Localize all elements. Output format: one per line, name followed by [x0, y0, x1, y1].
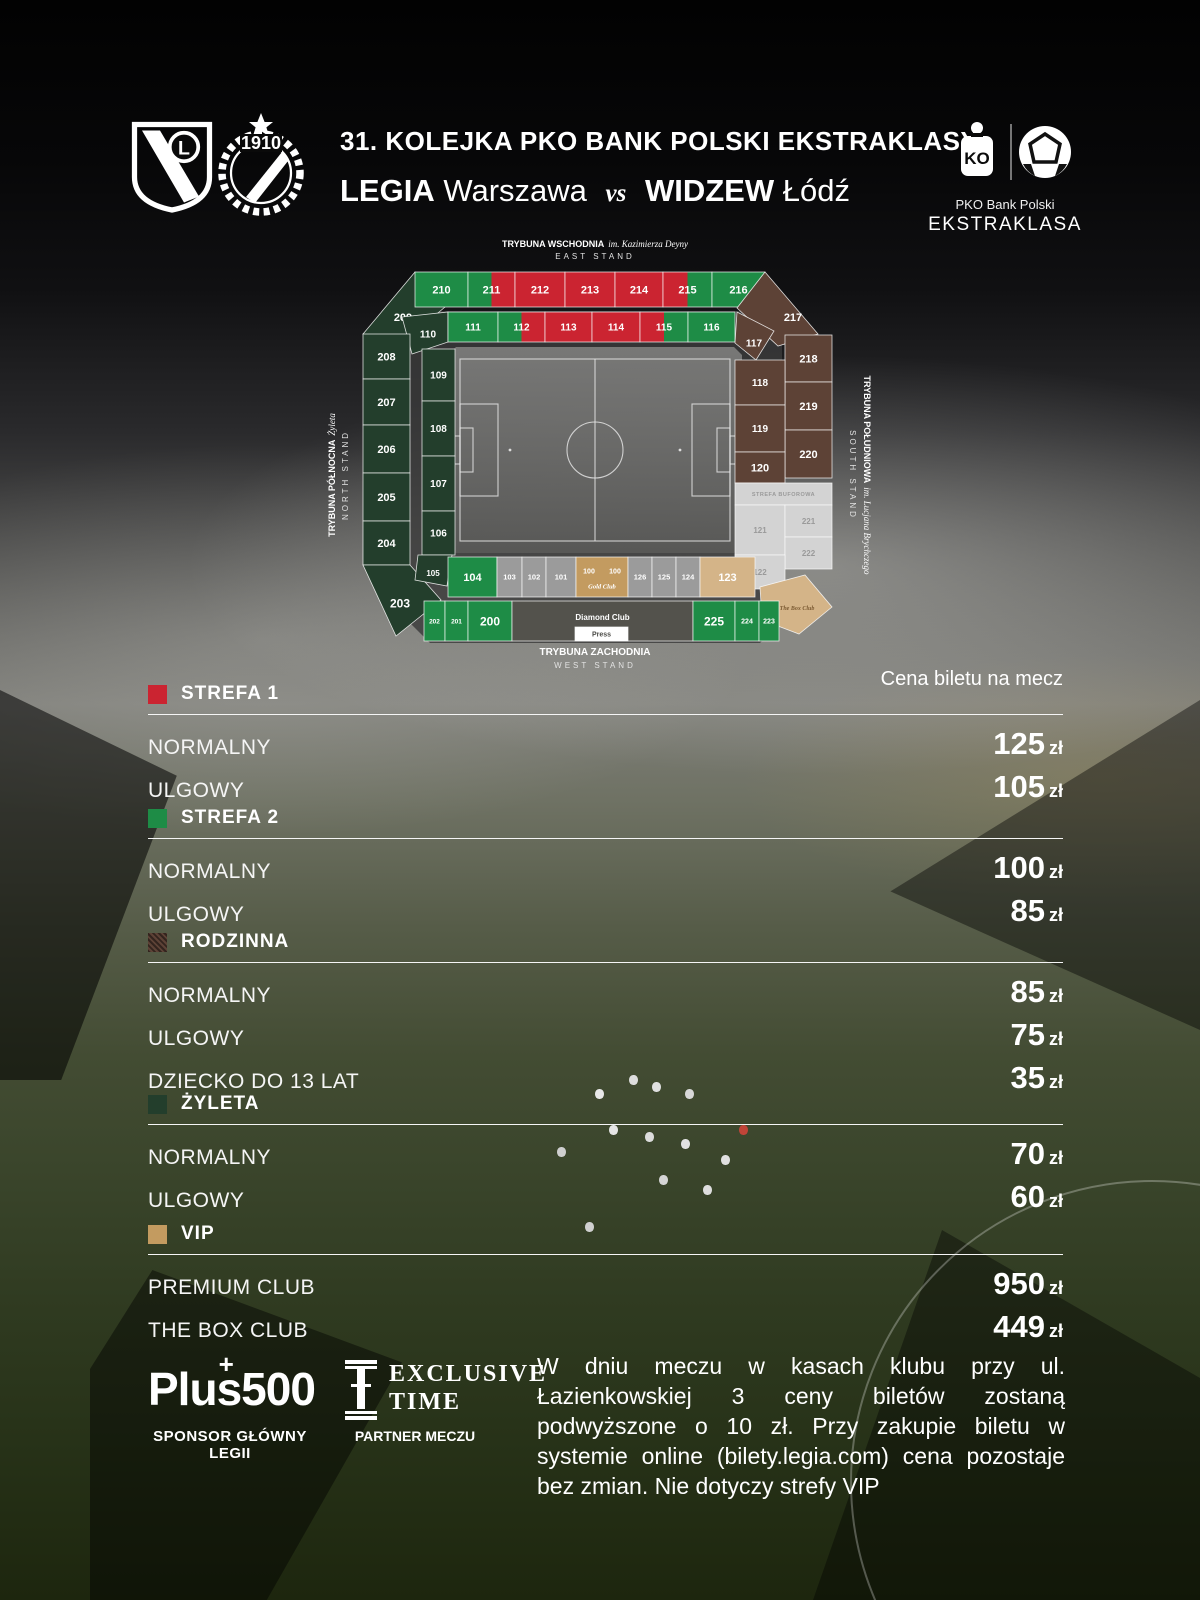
vs-label: vs	[596, 180, 637, 207]
stadium-section-label: 200	[480, 614, 500, 628]
players-on-pitch	[0, 0, 3, 4]
legia-warszawa-crest-icon: L	[127, 116, 217, 214]
away-team-city: Łódź	[783, 173, 850, 208]
plus500-logo: Plus+500	[148, 1362, 315, 1416]
match-title-block: 31. KOLEJKA PKO BANK POLSKI EKSTRAKLASY …	[340, 126, 850, 209]
price-group-rodzinna: RODZINNA NORMALNY 85zł ULGOWY 75zł DZIEC…	[148, 930, 1063, 1092]
match-ticket-poster: L 1910 31. KOLEJKA PKO BANK POLSKI EKSTR…	[0, 0, 1200, 1600]
pko-ekstraklasa-logos-icon: KO	[925, 120, 1085, 186]
stadium-section-label: 118	[752, 378, 769, 389]
stadium-section-label: 104	[463, 572, 482, 584]
stadium-section-label: 107	[430, 479, 447, 490]
stadium-section-label: 109	[430, 371, 447, 382]
stadium-section-label: 113	[560, 323, 577, 334]
exclusive-time-logo: EXCLUSIVETIME	[343, 1358, 547, 1420]
stadium-section-label: 100	[609, 569, 621, 576]
stadium-section-label: Press	[592, 632, 611, 639]
stadium-section-label: 114	[608, 323, 625, 334]
stadium-section-label: 120	[751, 462, 769, 474]
stadium-section	[576, 557, 628, 597]
price-group-strefa1: STREFA 1 NORMALNY 125zł ULGOWY 105zł	[148, 682, 1063, 801]
stadium-section-label: 208	[377, 351, 395, 363]
price-group-zyleta: ŻYLETA NORMALNY 70zł ULGOWY 60zł	[148, 1092, 1063, 1211]
stadium-section-label: 108	[430, 424, 447, 435]
divider	[148, 1124, 1063, 1125]
stadium-section-label: 102	[528, 573, 541, 582]
price-group-vip: VIP PREMIUM CLUB 950zł THE BOX CLUB 449z…	[148, 1222, 1063, 1341]
divider	[148, 962, 1063, 963]
stadium-section-label: 225	[704, 614, 724, 628]
stadium-section-label: 205	[377, 492, 395, 504]
stadium-section-label: 218	[799, 353, 817, 365]
price-group-title: STREFA 1	[181, 683, 279, 705]
stadium-section-label: 112	[513, 323, 530, 334]
price-group-title: ŻYLETA	[181, 1093, 259, 1115]
stadium-section-label: 125	[658, 573, 671, 582]
league-bank-caption: PKO Bank Polski	[925, 197, 1085, 212]
plus-icon: +	[219, 1349, 234, 1380]
stadium-section-label: 111	[465, 323, 481, 334]
stadium-section-label: 206	[377, 444, 395, 456]
divider	[148, 838, 1063, 839]
stadium-section-label: Gold Club	[588, 583, 616, 590]
league-name: EKSTRAKLASA	[925, 214, 1085, 236]
price-row: ULGOWY 60zł	[148, 1179, 1063, 1211]
stadium-section-label: 216	[729, 284, 747, 296]
stadium-section-label: 215	[678, 284, 696, 296]
stadium-section-label: 202	[429, 618, 440, 625]
south-stand-label: TRYBUNA POŁUDNIOWAim. Lucjana Brychczego	[862, 375, 872, 575]
stadium-section-label: 117	[746, 339, 763, 350]
west-stand-label: TRYBUNA ZACHODNIA	[540, 647, 651, 658]
stadium-section-label: 122	[753, 568, 767, 577]
zyleta-color-swatch	[148, 1095, 167, 1114]
strefa1-color-swatch	[148, 685, 167, 704]
svg-text:KO: KO	[964, 149, 990, 168]
divider	[148, 714, 1063, 715]
stadium-section-label: 214	[630, 284, 649, 296]
stadium-section-label: 224	[741, 619, 753, 626]
west-stand-label-en: WEST STAND	[554, 661, 636, 670]
price-row: ULGOWY 75zł	[148, 1017, 1063, 1049]
divider	[148, 1254, 1063, 1255]
stadium-section-label: 110	[420, 330, 437, 341]
south-stand-label-en: SOUTH STAND	[848, 430, 857, 520]
vip-color-swatch	[148, 1225, 167, 1244]
sponsor-caption: SPONSOR GŁÓWNY LEGII	[140, 1428, 320, 1462]
stadium-section-label: 217	[784, 312, 802, 324]
stadium-section-label: 210	[432, 284, 450, 296]
league-logo-block: KO PKO Bank Polski EKSTRAKLASA	[925, 120, 1085, 236]
east-stand-label-en: EAST STAND	[555, 252, 635, 261]
stadium-section-label: 103	[503, 573, 516, 582]
price-row: ULGOWY 105zł	[148, 769, 1063, 801]
stadium-section-label: 203	[390, 596, 410, 610]
stadium-section-label: 211	[483, 284, 501, 296]
stadium-section-label: 222	[802, 549, 816, 558]
east-stand-label: TRYBUNA WSCHODNIAim. Kazimierza Deyny	[502, 239, 688, 249]
matchday-price-note: W dniu meczu w kasach klubu przy ul. Łaz…	[537, 1352, 1065, 1501]
stadium-section-label: 126	[634, 573, 647, 582]
teams-line: LEGIA Warszawa vs WIDZEW Łódź	[340, 173, 850, 209]
price-group-title: STREFA 2	[181, 807, 279, 829]
stadium-section-label: 204	[377, 538, 396, 550]
stadium-section-label: 106	[430, 529, 447, 540]
price-row: THE BOX CLUB 449zł	[148, 1309, 1063, 1341]
stadium-section-label: 119	[752, 424, 769, 435]
stadium-section-label: 101	[555, 573, 568, 582]
price-group-title: RODZINNA	[181, 931, 289, 953]
stadium-section-label: 100	[583, 569, 595, 576]
home-team-city: Warszawa	[443, 173, 587, 208]
stadium-section-label: 207	[377, 397, 395, 409]
stadium-section-label: 116	[703, 323, 720, 334]
round-title: 31. KOLEJKA PKO BANK POLSKI EKSTRAKLASY	[340, 126, 850, 157]
stadium-section-label: 123	[718, 572, 736, 584]
price-row: DZIECKO DO 13 LAT 35zł	[148, 1060, 1063, 1092]
stadium-section-label: 105	[426, 569, 440, 578]
stadium-section-label: 115	[656, 323, 673, 334]
stadium-section-label: 220	[799, 449, 817, 461]
stadium-section-label: 124	[682, 573, 695, 582]
price-row: NORMALNY 70zł	[148, 1136, 1063, 1168]
stadium-section-label: 121	[753, 526, 767, 535]
stadium-section-label: 219	[799, 401, 817, 413]
north-stand-label: TRYBUNA PÓŁNOCNAŻyleta	[326, 413, 337, 537]
north-stand-label-en: NORTH STAND	[341, 430, 350, 520]
strefa2-color-swatch	[148, 809, 167, 828]
price-row: NORMALNY 125zł	[148, 726, 1063, 758]
stadium-section-label: 213	[581, 284, 599, 296]
partner-caption: PARTNER MECZU	[330, 1428, 500, 1444]
stadium-section-label: 223	[763, 619, 775, 626]
price-group-strefa2: STREFA 2 NORMALNY 100zł ULGOWY 85zł	[148, 806, 1063, 925]
price-row: ULGOWY 85zł	[148, 893, 1063, 925]
price-row: NORMALNY 85zł	[148, 974, 1063, 1006]
stadium-section-label: Diamond Club	[575, 613, 629, 622]
stadium-section-label: 201	[451, 618, 462, 625]
home-team-name: LEGIA	[340, 173, 435, 208]
svg-text:L: L	[178, 138, 190, 160]
exclusive-time-monogram-icon	[343, 1358, 379, 1420]
stadium-section-label: 221	[802, 517, 816, 526]
stadium-map: 2092102112122132142152162171101111121131…	[320, 235, 880, 675]
widzew-lodz-crest-icon: 1910	[210, 110, 312, 218]
svg-text:1910: 1910	[241, 133, 281, 153]
price-group-title: VIP	[181, 1223, 215, 1245]
price-row: PREMIUM CLUB 950zł	[148, 1266, 1063, 1298]
away-team-name: WIDZEW	[645, 173, 774, 208]
rodzinna-color-swatch	[148, 933, 167, 952]
stadium-section-label: 212	[531, 284, 549, 296]
stadium-section-label: STREFA BUFOROWA	[752, 492, 815, 498]
stadium-section-label: The Box Club	[780, 606, 815, 612]
price-row: NORMALNY 100zł	[148, 850, 1063, 882]
